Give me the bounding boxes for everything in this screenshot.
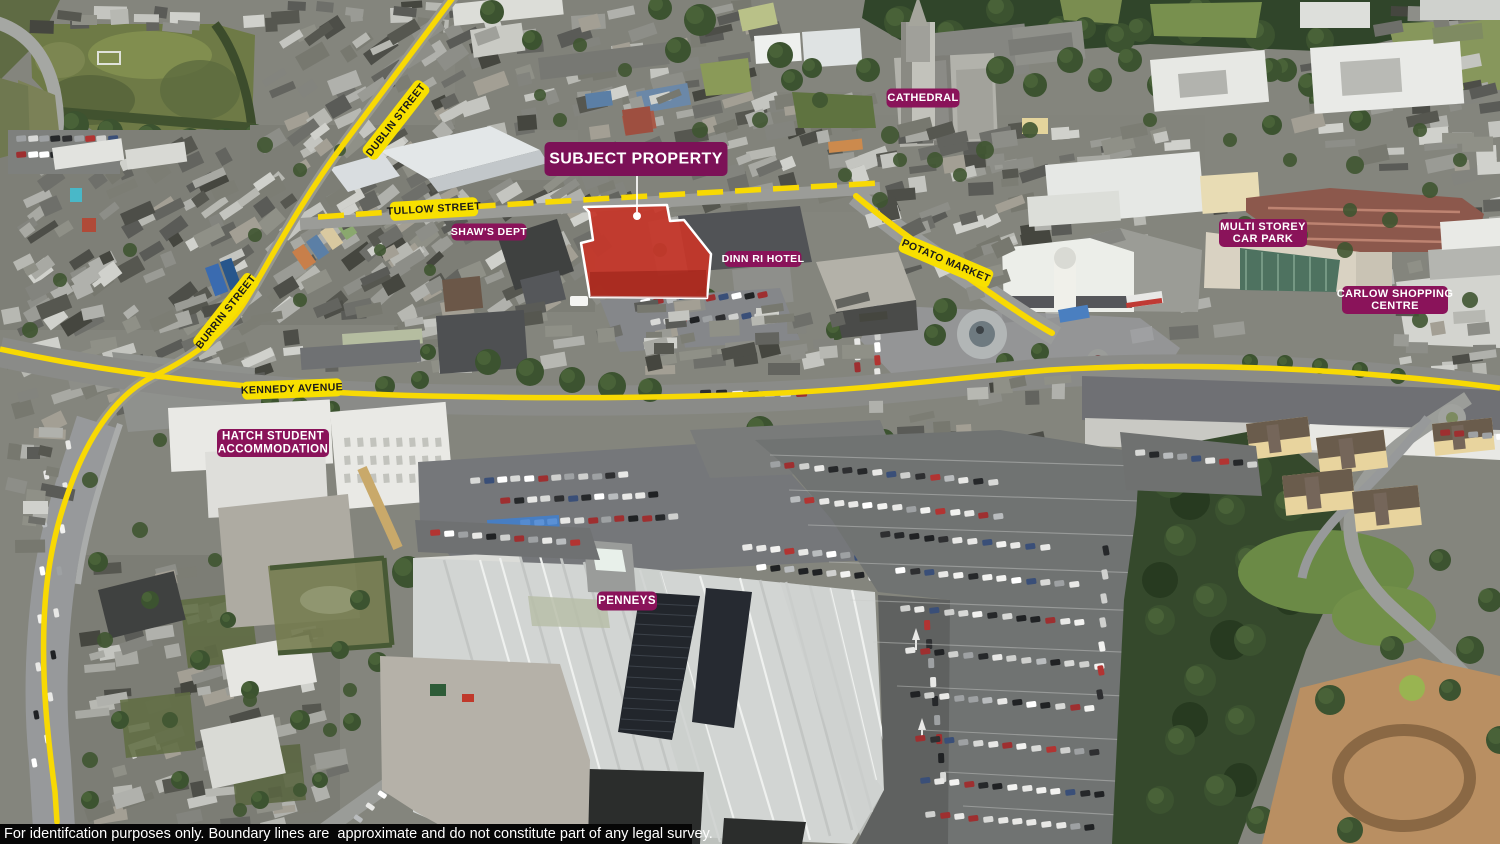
svg-text:CARLOW SHOPPING: CARLOW SHOPPING <box>1337 288 1454 300</box>
svg-text:ACCOMMODATION: ACCOMMODATION <box>218 444 328 456</box>
svg-text:SHAW'S DEPT: SHAW'S DEPT <box>451 226 528 238</box>
svg-text:For identifcation purposes onl: For identifcation purposes only. Boundar… <box>4 826 713 842</box>
svg-text:CENTRE: CENTRE <box>1371 300 1419 312</box>
svg-text:DINN RI HOTEL: DINN RI HOTEL <box>722 253 805 265</box>
svg-text:CATHEDRAL: CATHEDRAL <box>887 92 958 104</box>
svg-text:SUBJECT PROPERTY: SUBJECT PROPERTY <box>549 151 723 168</box>
svg-text:PENNEYS: PENNEYS <box>598 595 656 607</box>
svg-text:HATCH STUDENT: HATCH STUDENT <box>222 431 324 443</box>
svg-text:MULTI STOREY: MULTI STOREY <box>1220 221 1306 233</box>
svg-text:CAR PARK: CAR PARK <box>1233 233 1293 245</box>
